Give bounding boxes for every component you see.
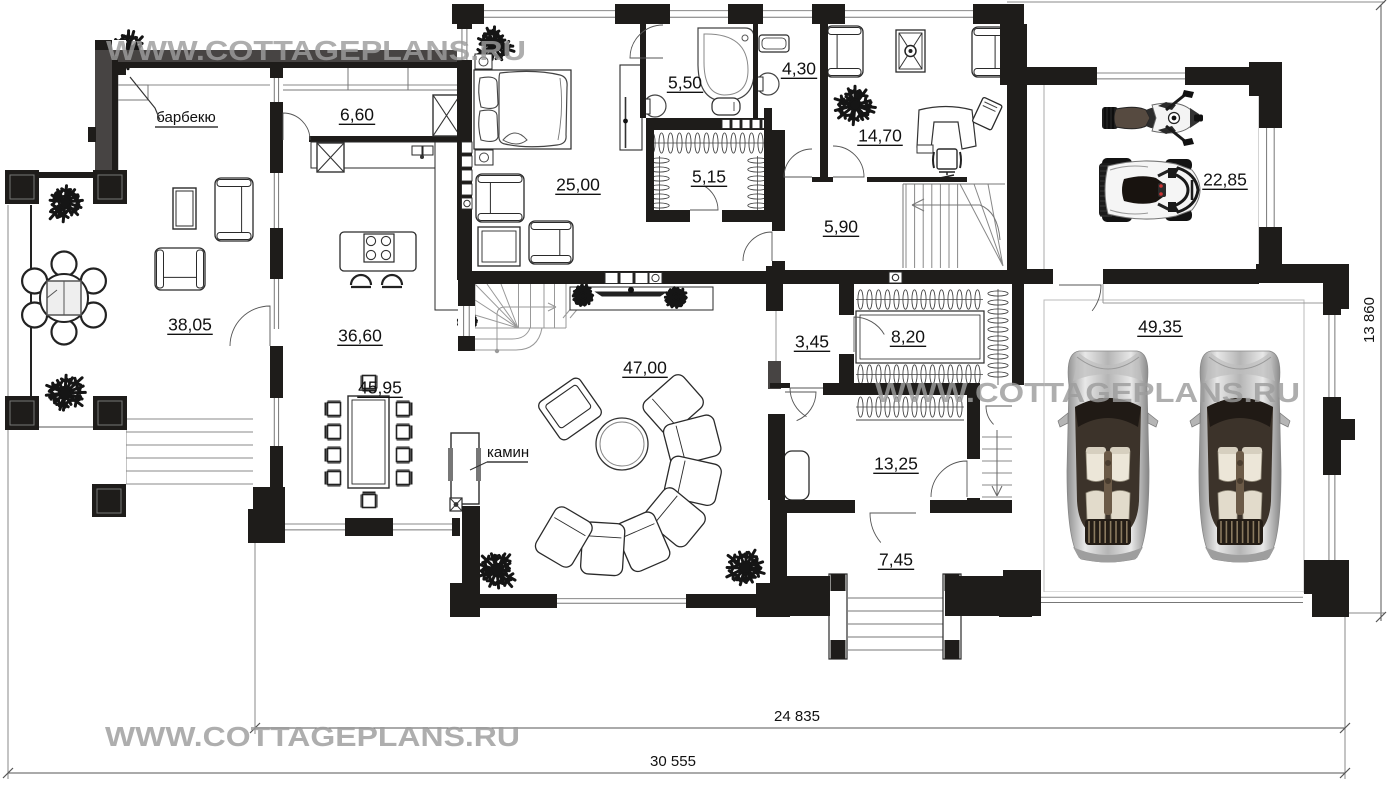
svg-text:WWW.COTTAGEPLANS.RU: WWW.COTTAGEPLANS.RU — [875, 377, 1300, 408]
svg-text:3,45: 3,45 — [795, 331, 829, 351]
svg-text:24 835: 24 835 — [774, 708, 820, 725]
svg-text:14,70: 14,70 — [858, 125, 902, 145]
svg-text:13 860: 13 860 — [1361, 297, 1378, 343]
svg-text:WWW.COTTAGEPLANS.RU: WWW.COTTAGEPLANS.RU — [106, 35, 526, 66]
svg-text:36,60: 36,60 — [338, 325, 382, 345]
svg-text:барбекю: барбекю — [156, 109, 216, 126]
svg-text:5,50: 5,50 — [668, 72, 702, 92]
svg-text:25,00: 25,00 — [556, 174, 600, 194]
svg-text:45,95: 45,95 — [358, 377, 402, 397]
svg-text:49,35: 49,35 — [1138, 316, 1182, 336]
svg-text:5,90: 5,90 — [824, 216, 858, 236]
svg-text:камин: камин — [487, 444, 529, 461]
svg-text:22,85: 22,85 — [1203, 169, 1247, 189]
svg-text:4,30: 4,30 — [782, 58, 816, 78]
svg-text:5,15: 5,15 — [692, 166, 726, 186]
svg-text:13,25: 13,25 — [874, 453, 918, 473]
svg-text:47,00: 47,00 — [623, 357, 667, 377]
svg-text:30 555: 30 555 — [650, 753, 696, 770]
svg-text:38,05: 38,05 — [168, 314, 212, 334]
svg-text:WWW.COTTAGEPLANS.RU: WWW.COTTAGEPLANS.RU — [105, 721, 520, 752]
svg-text:7,45: 7,45 — [879, 549, 913, 569]
svg-text:8,20: 8,20 — [891, 326, 925, 346]
svg-text:6,60: 6,60 — [340, 104, 374, 124]
